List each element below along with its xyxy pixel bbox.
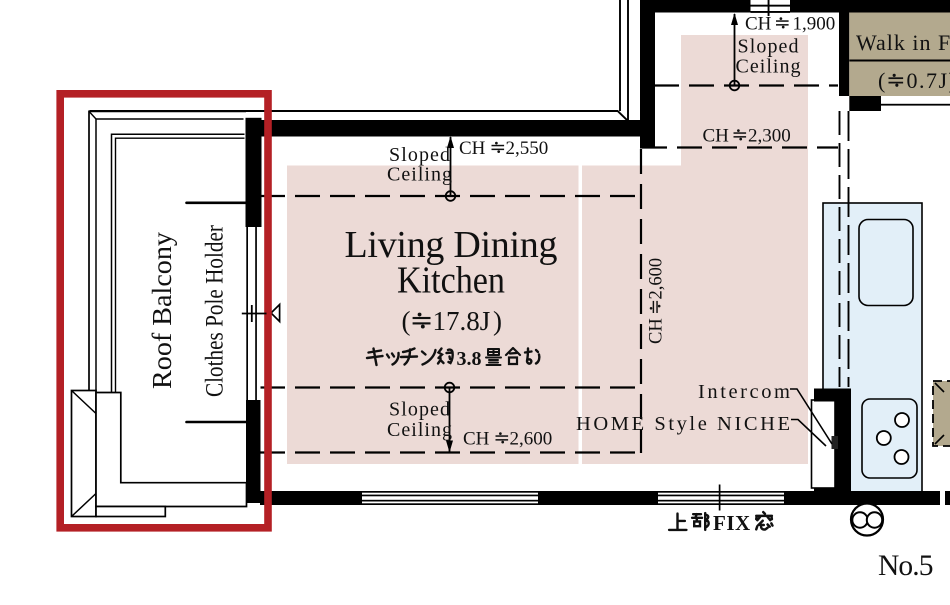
svg-text:CH: CH	[745, 14, 772, 35]
svg-text:2,600: 2,600	[647, 258, 667, 300]
svg-text:CH: CH	[463, 429, 490, 450]
svg-text:Intercom: Intercom	[698, 381, 790, 403]
svg-text:CH: CH	[647, 318, 667, 344]
svg-text:Ceiling: Ceiling	[736, 56, 801, 78]
svg-text:Kitchen: Kitchen	[397, 260, 505, 302]
svg-text:(: (	[878, 68, 885, 93]
svg-text:): )	[493, 306, 502, 336]
svg-text:FIX: FIX	[713, 511, 751, 535]
svg-text:Sloped: Sloped	[738, 36, 799, 58]
svg-text:No.5: No.5	[878, 550, 934, 582]
svg-text:CH: CH	[459, 138, 486, 159]
svg-text:(: (	[402, 306, 411, 336]
svg-text:3.8: 3.8	[457, 348, 482, 370]
svg-text:Ceiling: Ceiling	[387, 419, 452, 441]
svg-text:Walk in Fit: Walk in Fit	[856, 30, 950, 55]
svg-text:CH: CH	[703, 126, 730, 147]
svg-text:17.8J: 17.8J	[433, 306, 491, 336]
svg-text:Ceiling: Ceiling	[387, 164, 452, 186]
svg-text:Roof Balcony: Roof Balcony	[146, 232, 177, 389]
svg-text:Sloped: Sloped	[389, 399, 450, 421]
svg-text:2,550: 2,550	[506, 138, 549, 159]
svg-text:2,600: 2,600	[510, 429, 553, 450]
svg-text:1,900: 1,900	[793, 14, 836, 35]
svg-text:0.7J): 0.7J)	[907, 68, 950, 93]
svg-text:2,300: 2,300	[748, 126, 791, 147]
svg-text:Clothes Pole Holder: Clothes Pole Holder	[202, 224, 229, 397]
